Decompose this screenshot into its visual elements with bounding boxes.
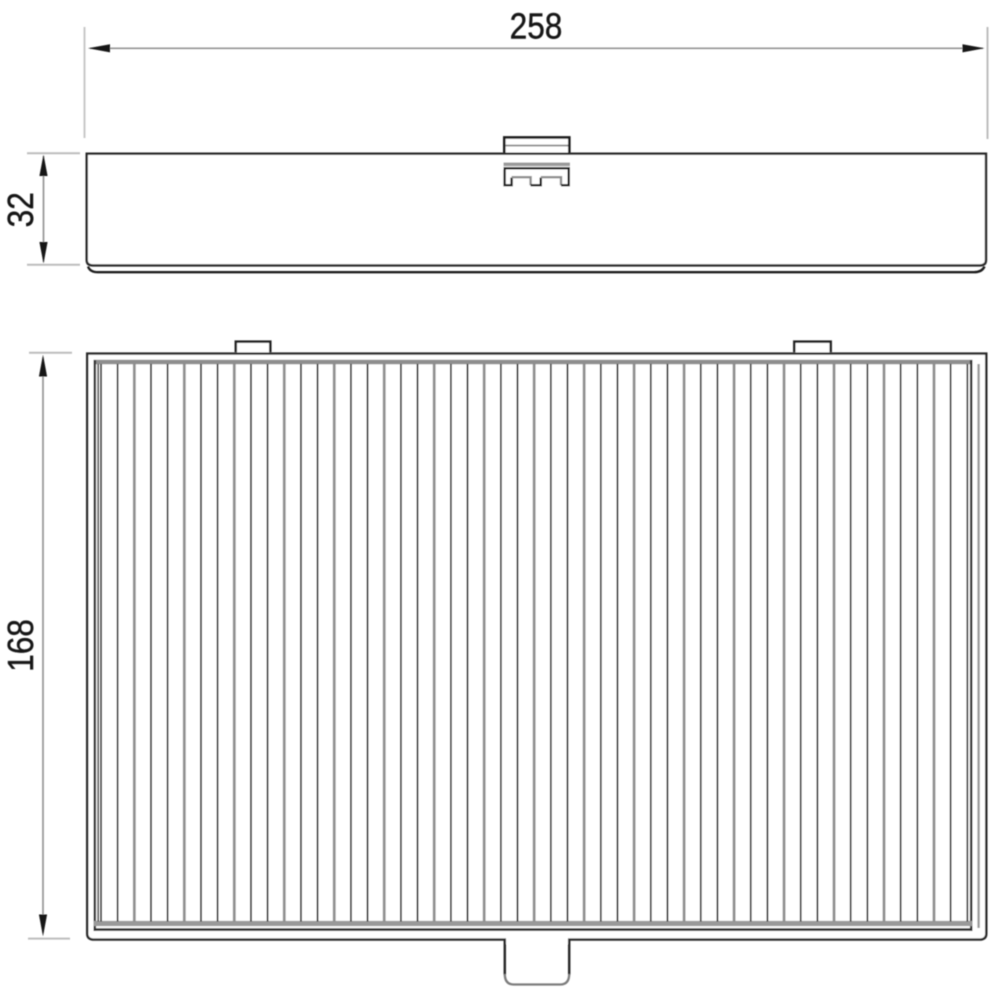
- svg-text:258: 258: [510, 7, 563, 47]
- svg-text:168: 168: [1, 619, 41, 672]
- svg-text:32: 32: [1, 192, 41, 227]
